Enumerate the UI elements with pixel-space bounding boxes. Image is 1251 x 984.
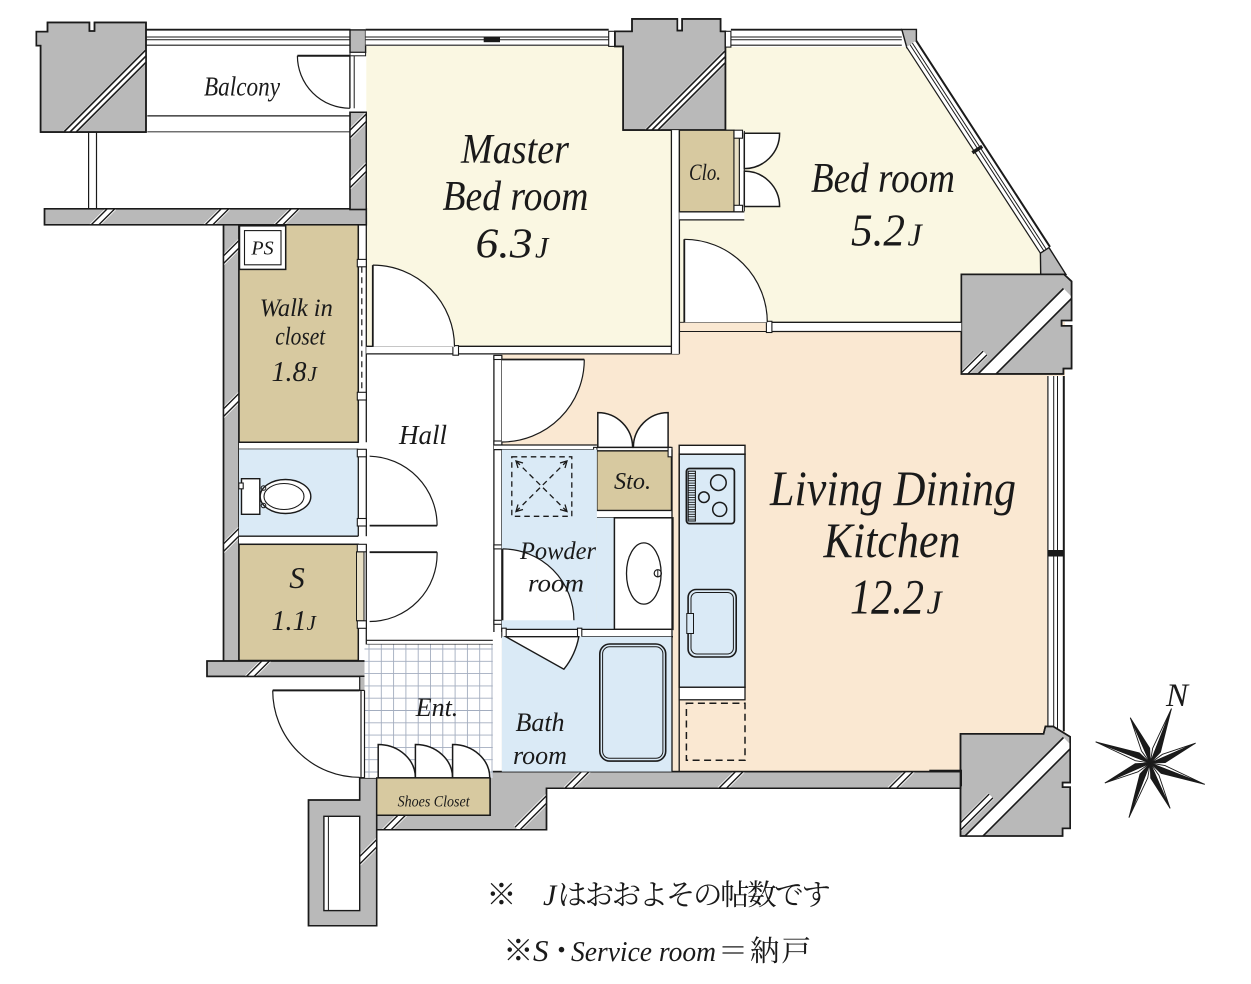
svg-text:closet: closet: [275, 324, 326, 351]
svg-text:Powder: Powder: [519, 538, 596, 565]
svg-text:Sto.: Sto.: [614, 469, 651, 495]
svg-text:N: N: [1165, 678, 1190, 714]
svg-text:Kitchen: Kitchen: [823, 512, 961, 568]
svg-text:Walk in: Walk in: [260, 295, 333, 322]
svg-text:1.8: 1.8: [272, 357, 307, 388]
svg-text:S: S: [289, 560, 305, 595]
svg-text:Clo.: Clo.: [689, 160, 721, 185]
svg-text:Hall: Hall: [398, 420, 447, 450]
svg-text:J: J: [543, 879, 558, 912]
svg-text:Bed room: Bed room: [443, 174, 589, 220]
svg-text:1.1: 1.1: [272, 606, 307, 637]
svg-text:J: J: [535, 232, 550, 265]
svg-text:Ent.: Ent.: [415, 693, 459, 722]
svg-text:Shoes Closet: Shoes Closet: [398, 794, 470, 811]
svg-text:Bed room: Bed room: [811, 156, 955, 202]
svg-text:Service room: Service room: [571, 936, 716, 968]
svg-text:room: room: [513, 741, 567, 770]
svg-text:12.2: 12.2: [850, 569, 924, 625]
svg-text:room: room: [528, 571, 584, 598]
svg-text:Bath: Bath: [515, 708, 564, 737]
svg-text:J: J: [908, 217, 924, 253]
svg-text:Living Dining: Living Dining: [769, 460, 1016, 516]
svg-text:PS: PS: [250, 238, 273, 260]
svg-text:J: J: [927, 585, 944, 622]
svg-text:Balcony: Balcony: [204, 72, 280, 102]
svg-text:5.2: 5.2: [851, 205, 905, 256]
svg-text:Master: Master: [460, 127, 569, 173]
svg-text:6.3: 6.3: [476, 222, 533, 268]
svg-text:S: S: [533, 933, 549, 968]
